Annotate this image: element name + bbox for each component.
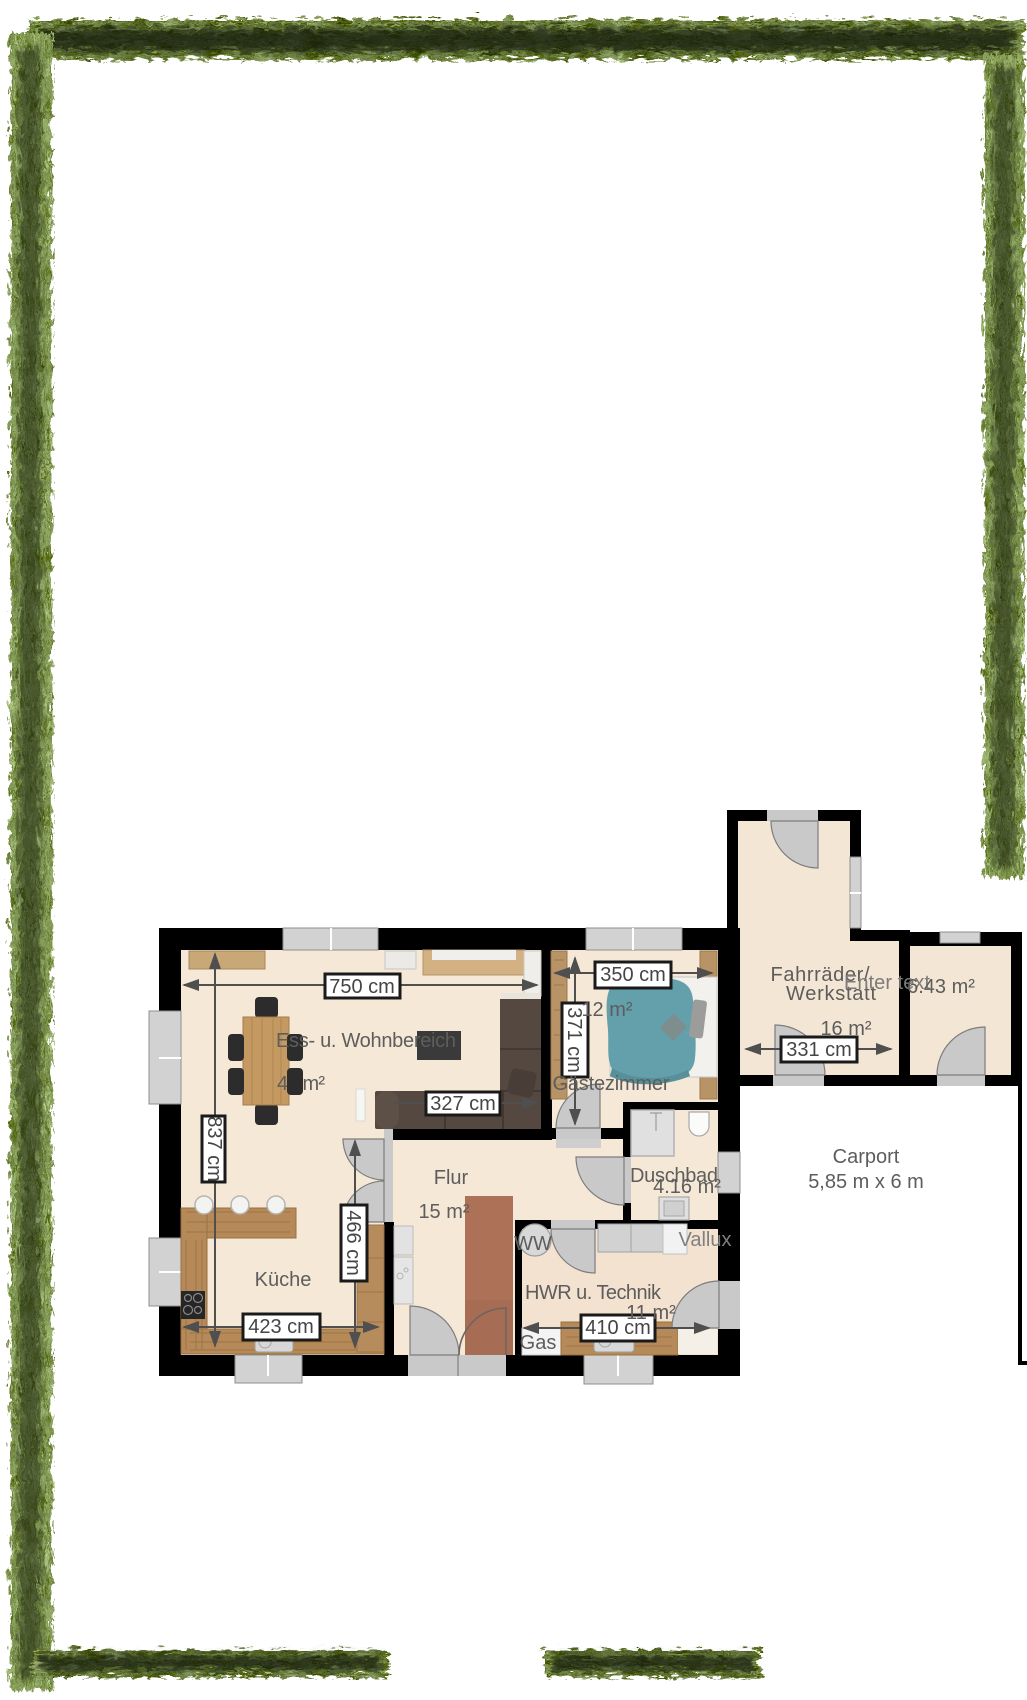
svg-text:Gästezimmer: Gästezimmer (553, 1073, 670, 1095)
svg-text:12 m²: 12 m² (581, 999, 632, 1021)
svg-text:466 cm: 466 cm (342, 1210, 364, 1276)
svg-text:Gas: Gas (520, 1332, 557, 1354)
svg-text:11 m²: 11 m² (626, 1302, 676, 1324)
svg-text:331 cm: 331 cm (786, 1039, 852, 1061)
svg-text:837 cm: 837 cm (203, 1116, 225, 1182)
svg-text:16 m²: 16 m² (820, 1018, 871, 1040)
svg-text:327 cm: 327 cm (430, 1093, 496, 1115)
svg-text:350 cm: 350 cm (600, 964, 666, 986)
svg-text:5,85 m x 6 m: 5,85 m x 6 m (808, 1171, 924, 1193)
svg-text:Ess- u. Wohnbereich: Ess- u. Wohnbereich (276, 1030, 456, 1052)
svg-text:Küche: Küche (255, 1269, 312, 1291)
svg-text:Vallux: Vallux (679, 1229, 732, 1251)
svg-text:6.43 m²: 6.43 m² (907, 976, 975, 998)
svg-text:HWR u. Technik: HWR u. Technik (525, 1282, 662, 1304)
svg-text:423 cm: 423 cm (248, 1316, 314, 1338)
svg-text:Flur: Flur (434, 1167, 469, 1189)
svg-text:750 cm: 750 cm (329, 976, 395, 998)
svg-text:Carport: Carport (833, 1146, 900, 1168)
svg-text:15 m²: 15 m² (418, 1201, 469, 1223)
svg-text:4.16 m²: 4.16 m² (653, 1176, 721, 1198)
svg-text:WW: WW (514, 1233, 552, 1255)
